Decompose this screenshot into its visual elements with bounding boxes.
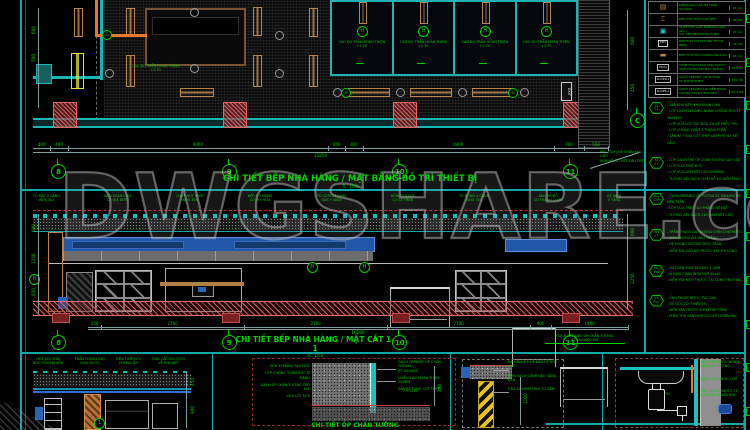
exhaust-hood xyxy=(63,237,375,252)
legend-description: ĐÈN THẢ TRẦN KHU BẾP xyxy=(678,18,729,21)
column xyxy=(223,102,247,128)
detail-b-concrete xyxy=(312,363,370,405)
note-tag: S1 T1 xyxy=(650,103,663,113)
dim-segment: 400 xyxy=(530,320,551,328)
detail-label: ỐNG CẤP NƯỚC NÓNG LẠNH ÂM TƯỜNG xyxy=(700,360,742,369)
trap-bottle xyxy=(648,389,665,410)
detail-a-cabinet-box xyxy=(152,403,178,429)
note-group: V1 PVC - ỐNG THOÁT NƯỚC PVC D90 - ĐỘ DỐC… xyxy=(649,295,744,320)
section-dim-right: 600 xyxy=(630,228,635,236)
legend-symbol-icon: ▤ xyxy=(660,4,667,11)
downlight xyxy=(190,64,199,73)
sink-bowl xyxy=(638,371,684,384)
detail-a-labels: HỘP GIÓ THẢI BỌC TÔN MẠ KẼMTRẦN THẠCH CA… xyxy=(33,357,185,365)
legend-quantity: 04 CÁI xyxy=(729,6,745,10)
plan-title: CHI TIẾT BẾP NHÀ HÀNG / MẶT BẰNG BỐ TRÍ … xyxy=(120,174,580,184)
counter-line xyxy=(48,263,608,264)
legend-icon-cell: SL/CER-2 xyxy=(649,86,678,97)
equipment-label: BẾP Á 2 HỌNG CÓ VÒI RỬA xyxy=(248,194,273,202)
legend-row: ▬ ĐÈN TUÝP ĐÔI CHỐNG ẨM 1.2M 08 CÁI xyxy=(649,50,745,62)
equipment-label-row: TỦ MÁT 2 CÁNH INOX 304BÀN SOẠN CHIA CÓ G… xyxy=(33,194,621,202)
detail-a-dim-line xyxy=(186,372,187,428)
dim-segment: 700 xyxy=(554,141,584,149)
detail-a-dim: 900 xyxy=(190,406,195,414)
note-lines: - TRẦN THẠCH CAO KHUNG CHÌM CHỊU NƯỚC - … xyxy=(667,229,744,254)
legend-icon-cell: ▣ xyxy=(649,26,678,37)
note-tag: V1 PVC xyxy=(650,296,663,306)
section-ceiling-dashed xyxy=(33,210,623,212)
column xyxy=(393,102,417,128)
stall-leader xyxy=(540,63,548,64)
section-dim-right: 2250 xyxy=(630,273,635,284)
frame-divider-plan-section xyxy=(20,189,746,191)
grid-bubble-side: C xyxy=(630,113,645,128)
detail-a-counter-box xyxy=(105,400,149,429)
stall-tag: H xyxy=(541,26,552,37)
plan-wall-left xyxy=(100,0,103,80)
detail-a-ceiling-hatch xyxy=(33,374,191,387)
equipment-label: CHỤP HÚT KHÓI INOX 304 xyxy=(176,194,203,202)
light-fixture-horizontal xyxy=(410,88,452,97)
stall-door xyxy=(482,2,490,24)
grid-bubble: 8 xyxy=(51,335,66,350)
stall-door xyxy=(543,2,551,24)
work-table xyxy=(560,367,608,407)
note-group: M1 INX - MẶT BÀN INOX 304 DÀY 1.2MM - KH… xyxy=(649,265,744,284)
legend-icon-cell: EXIT xyxy=(649,38,678,49)
detail-c-stone-cap xyxy=(470,365,512,379)
legend-row: CL/CER-1 GẠCH CERAMIC ỐP TƯỜNG KT 300x60… xyxy=(649,74,745,86)
light-fixture-yellow xyxy=(71,53,84,89)
fixture-marker: H xyxy=(508,88,518,98)
legend-description: ĐÈN TUÝP ĐÔI CHỐNG ẨM 1.2M xyxy=(678,54,729,57)
note-group: S2 T2 - LỚP GẠCH THẺ ỐP CHÂN TƯỜNG CAO 1… xyxy=(649,157,744,182)
note-tag-hexagon: W1 CER xyxy=(649,193,664,205)
floor-column-drop xyxy=(52,313,70,323)
note-group: S1 T1 - SÀN KHU BẾP, KHU SOẠN CHIA - LỚP… xyxy=(649,102,744,146)
duct-pipe-vertical xyxy=(95,0,98,36)
legend-row: ▣ QUẠT HÚT GẮN TRẦN NỐI ỐNG GIÓ CHI TIẾT… xyxy=(649,26,745,38)
legend-symbol-icon: ▬ xyxy=(660,52,667,59)
frame-left-outer xyxy=(20,0,22,430)
dim-segment: 400 xyxy=(345,141,362,149)
detail-separator-1 xyxy=(212,354,213,430)
exit-sign: EXIT xyxy=(561,82,572,101)
edge-cutoff-markers xyxy=(746,14,750,416)
detail-label: GẠCH CERAMIC ỐP CHÂN TƯỜNG KT 100x600 xyxy=(398,360,452,373)
frame-left-inner xyxy=(25,0,26,430)
plan-dim-left-line xyxy=(38,8,39,108)
detail-a-blue-box xyxy=(35,407,43,420)
grid-bubble: 8 xyxy=(51,164,66,179)
legend-quantity: 06 CÁI xyxy=(729,18,745,22)
legend-quantity: 05 CÁI xyxy=(729,30,745,34)
section-title: CHI TIẾT BẾP NHÀ HÀNG / MẶT CẮT 1-1 xyxy=(235,335,395,353)
stall-tag: H xyxy=(480,26,491,37)
stall-label: CAO ĐỘ TRẦN HOÀN THIỆN +2.70 xyxy=(334,40,390,49)
note-tag-hexagon: KH T3 xyxy=(649,229,664,241)
plan-wall-bottom xyxy=(33,118,607,128)
stall-block: H CAO ĐỘ TRẦN HOÀN THIỆN +2.70 H CAO ĐỘ … xyxy=(330,0,578,76)
legend-symbol-icon: ▣ xyxy=(660,28,667,35)
detail-a-dim: 450 xyxy=(190,378,195,386)
section-title-block: CHI TIẾT BẾP NHÀ HÀNG / MẶT CẮT 1-1 TL: … xyxy=(235,335,395,358)
plan-dim-right: 450 xyxy=(630,84,635,92)
detail-label: GẠCH ỐP CHÂN TƯỜNG CAO 100 xyxy=(254,383,310,392)
detail-label: VỮA XI MĂNG TẠO DỐC xyxy=(254,364,310,368)
light-fixture xyxy=(253,55,262,87)
section-marker: H xyxy=(307,262,318,273)
equipment-label: BỒN RỬA ĐÔI CÓ KỆ TRÊN xyxy=(391,194,415,202)
dim-segment: 2700 xyxy=(387,320,530,328)
legend-description: TRẦN THẠCH CAO CHỊU NƯỚC SƠN CHỐNG ẨM MÀ… xyxy=(678,64,729,71)
legend-description: MIỆNG GIÓ CẤP ÂM TRẦN 600x600 xyxy=(678,4,729,11)
equipment-label: TỦ MÁT 2 CÁNH INOX 304 xyxy=(33,194,60,202)
section-dim-right-line xyxy=(627,214,628,310)
legend-quantity: 08 CÁI xyxy=(729,54,745,58)
legend-symbol-icon: EXIT xyxy=(658,40,668,47)
dim-segment: 1450 xyxy=(551,320,628,328)
section-dim-row: 2502700270027004001450 xyxy=(88,320,628,328)
note-tag: W1 CER xyxy=(650,194,663,204)
plan-dim-row: 40040060004004004400700550 xyxy=(33,141,608,149)
stall-leader xyxy=(417,63,425,64)
wall-tile-line xyxy=(694,359,698,426)
notes-list: S1 T1 - SÀN KHU BẾP, KHU SOẠN CHIA - LỚP… xyxy=(649,102,744,331)
stall-cell: H CAO ĐỘ TRẦN HOÀN THIỆN +2.70 xyxy=(394,2,456,74)
stall-label: CAO ĐỘ TRẦN HOÀN THIỆN +2.70 xyxy=(519,40,575,49)
downlight xyxy=(105,69,114,78)
section-dim-left: 1350 xyxy=(31,253,36,264)
detail-label: CHẬU RỬA INOX 1 HỐ xyxy=(700,377,742,381)
detail-b-title: CHI TIẾT ỐP CHÂN TƯỜNG xyxy=(280,422,430,429)
ceiling-slab-hatch xyxy=(33,218,623,230)
detail-label: SƠN VẠCH CẢNH BÁO VÀNG - ĐEN xyxy=(508,374,560,383)
stall-cell: H CAO ĐỘ TRẦN HOÀN THIỆN +2.70 xyxy=(332,2,394,74)
legend-table: ▤ MIỆNG GIÓ CẤP ÂM TRẦN 600x600 04 CÁI ⌶… xyxy=(648,1,746,98)
duct-marker: G xyxy=(102,30,112,40)
legend-symbol-icon: ⌶ xyxy=(661,16,665,23)
light-fixture xyxy=(126,8,135,37)
detail-a-marker: 1 xyxy=(94,418,105,429)
supply-pipe-orange xyxy=(691,365,693,393)
note-tag-hexagon: M1 INX xyxy=(649,265,664,277)
section-dim-left-line xyxy=(38,214,39,314)
note-lines: - ỐNG THOÁT NƯỚC PVC D90 - ĐỘ DỐC TỐI TH… xyxy=(667,295,744,320)
stall-label: CAO ĐỘ TRẦN HOÀN THIỆN +2.70 xyxy=(396,40,452,49)
legend-symbol-icon: TR-01 xyxy=(657,64,669,71)
light-fixture xyxy=(309,55,318,87)
legend-icon-cell: TR-01 xyxy=(649,62,678,73)
detail-b-level-mark: ▽ +0.100 xyxy=(402,389,418,393)
plan-dim-left: 500 xyxy=(31,54,36,62)
note-group: KH T3 - TRẦN THẠCH CAO KHUNG CHÌM CHỊU N… xyxy=(649,229,744,254)
detail-label: LỚP CHỐNG THẤM GỐC XI MĂNG xyxy=(254,371,310,380)
equipment-label: BÀN SOẠN CHIA CÓ GIÁ DƯỚI xyxy=(104,194,131,202)
detail-label: VỮA LÓT M75 xyxy=(254,394,310,398)
section-dim-left: 850 xyxy=(31,288,36,296)
downlight xyxy=(458,88,467,97)
legend-description: GẠCH CERAMIC LÁT NỀN NHÁM CHỐNG TRƯỢT 30… xyxy=(678,88,729,95)
note-tag-hexagon: V1 PVC xyxy=(649,295,664,307)
equipment-label: BÀN RA ĐỒ CÓ THÀNH CHẮN xyxy=(534,194,563,202)
hood-lower-band xyxy=(63,251,373,261)
louver-strip xyxy=(578,0,610,148)
cad-drawing-sheet: G CAO ĐỘ TRẦN HOÀN THIỆN +2.70 H CAO ĐỘ … xyxy=(0,0,750,430)
equipment-label: TỦ CƠM 24 KHAY GAS + ĐIỆN xyxy=(317,194,346,202)
detail-c-leader xyxy=(493,392,509,393)
detail-b-leader xyxy=(377,381,396,382)
note-lines: - GẠCH CERAMIC ỐP TƯỜNG KT 300x600 ỐP ĐẾ… xyxy=(667,193,744,218)
detail-label: CAO 1100MM TÍNH TỪ SÀN xyxy=(508,387,560,391)
detail-label: CHIỀU CAO HOÀN THIỆN 100MM xyxy=(398,376,452,385)
dim-segment: 6000 xyxy=(68,141,328,149)
stall-leader xyxy=(356,63,364,64)
legend-icon-cell: CL/CER-1 xyxy=(649,74,678,85)
equipment-label: KỆ INOX 4 TẦNG xyxy=(607,194,621,202)
detail-d-labels: ỐNG CẤP NƯỚC NÓNG LẠNH ÂM TƯỜNGCHẬU RỬA … xyxy=(700,360,742,405)
downlight xyxy=(275,69,284,78)
legend-icon-cell: ⌶ xyxy=(649,14,678,25)
stall-cell: H CAO ĐỘ TRẦN HOÀN THIỆN +2.70 xyxy=(517,2,577,74)
legend-row: TR-01 TRẦN THẠCH CAO CHỊU NƯỚC SƠN CHỐNG… xyxy=(649,62,745,74)
detail-a-teal-line xyxy=(33,388,191,390)
detail-d-counter xyxy=(620,367,696,370)
detail-c-labels: ĐÁ GRANITE ỐP BẢO VỆ GÓC CỘTSƠN VẠCH CẢN… xyxy=(508,360,560,396)
detail-b-left-labels: VỮA XI MĂNG TẠO DỐCLỚP CHỐNG THẤM GỐC XI… xyxy=(254,364,310,402)
section-scale: TL: 1/50 xyxy=(235,353,395,358)
column xyxy=(53,102,77,128)
detail-c-leader xyxy=(493,370,509,371)
legend-symbol-icon: CL/CER-1 xyxy=(655,76,672,83)
floor-slab xyxy=(33,301,633,316)
legend-quantity: 02 CÁI xyxy=(729,42,745,46)
legend-icon-cell: ▬ xyxy=(649,50,678,61)
note-group: W1 CER - GẠCH CERAMIC ỐP TƯỜNG KT 300x60… xyxy=(649,193,744,218)
plan-dim-total: 13250 xyxy=(33,152,608,158)
legend-row: ▤ MIỆNG GIÓ CẤP ÂM TRẦN 600x600 04 CÁI xyxy=(649,2,745,14)
ceiling-line xyxy=(33,231,623,232)
plan-dim-right: 600 xyxy=(630,37,635,45)
detail-label: ỐNG THOÁT NƯỚC CÓ XI PHÔNG NGĂN MÙI xyxy=(700,389,742,398)
note-lines: - LỚP GẠCH THẺ ỐP CHÂN TƯỜNG CAO 100 - L… xyxy=(667,157,744,182)
detail-label: TRẦN THẠCH CAO CHỊU NƯỚC xyxy=(75,357,106,365)
plan-title-block: CHI TIẾT BẾP NHÀ HÀNG / MẶT BẰNG BỐ TRÍ … xyxy=(120,174,580,189)
dim-segment: 2700 xyxy=(101,320,244,328)
dim-segment: 400 xyxy=(50,141,67,149)
detail-a-ceiling-ticks xyxy=(33,371,191,373)
note-lines: - SÀN KHU BẾP, KHU SOẠN CHIA - LỚP GẠCH … xyxy=(667,102,744,146)
stall-door xyxy=(359,2,367,24)
legend-quantity: 78.0 M2 xyxy=(729,78,745,82)
detail-label: ỐNG CẤP GIÓ TƯƠI VỀ KHU BẾP xyxy=(152,357,185,365)
legend-row: EXIT ĐÈN EXIT CHỈ HƯỚNG THOÁT HIỂM 02 CÁ… xyxy=(649,38,745,50)
detail-d-dim: 750 xyxy=(664,392,670,396)
note-tag: KH T3 xyxy=(650,230,663,240)
detail-b-leader xyxy=(377,369,396,370)
dim-segment: 400 xyxy=(33,141,50,149)
legend-description: GẠCH CERAMIC ỐP TƯỜNG KT 300x600 MM xyxy=(678,76,729,83)
detail-b-red-line xyxy=(312,405,430,406)
downlight xyxy=(190,8,199,17)
legend-row: SL/CER-2 GẠCH CERAMIC LÁT NỀN NHÁM CHỐNG… xyxy=(649,86,745,97)
exhaust-hood-small xyxy=(505,239,567,252)
note-tag-hexagon: S1 T1 xyxy=(649,102,664,114)
dim-segment: 400 xyxy=(328,141,345,149)
plan-dim-right-line xyxy=(627,10,628,110)
detail-a-blue-line xyxy=(33,391,191,393)
detail-c-warning-stripe xyxy=(478,381,494,428)
dim-segment: 4400 xyxy=(363,141,554,149)
legend-quantity: 61.4 M2 xyxy=(729,90,745,94)
water-valve xyxy=(718,404,732,414)
detail-label: ĐÈN TUÝP ĐÔI CHỐNG ẨM xyxy=(116,357,140,365)
stall-tag: H xyxy=(418,26,429,37)
drain-elbow xyxy=(677,406,687,416)
detail-b-dim-line xyxy=(434,366,435,406)
section-marker: H xyxy=(359,262,370,273)
note-tag: S2 T2 xyxy=(650,158,663,168)
note-tag: M1 INX xyxy=(650,266,663,276)
counter-top-tan xyxy=(160,282,244,286)
legend-quantity: 45.5 M2 xyxy=(729,66,745,70)
section-dim-left: 600 xyxy=(31,224,36,232)
stall-door xyxy=(420,2,428,24)
fixture-marker: H xyxy=(341,88,351,98)
note-lines: - MẶT BÀN INOX 304 DÀY 1.2MM - KHUNG CHÂ… xyxy=(667,265,744,284)
light-fixture xyxy=(74,8,83,37)
equipment-label: TỦ ĐÔNG 4 CÁNH INOX 304 xyxy=(459,194,489,202)
downlight xyxy=(275,31,284,40)
plan-scale: TL: 1/50 xyxy=(120,184,580,189)
detail-b-dim: 100 xyxy=(437,384,442,392)
section-right-note: GẠCH CERAMIC ỐP CHÂN TƯỜNG KT 100x600 MM xyxy=(545,334,625,344)
legend-icon-cell: ▤ xyxy=(649,2,678,13)
stall-cell: H CAO ĐỘ TRẦN HOÀN THIỆN +2.70 xyxy=(455,2,517,74)
frame-notes-column xyxy=(644,0,646,353)
light-fixture xyxy=(253,7,262,36)
legend-description: QUẠT HÚT GẮN TRẦN NỐI ỐNG GIÓ CHI TIẾT X… xyxy=(678,26,729,36)
detail-label: HỘP GIÓ THẢI BỌC TÔN MẠ KẼM xyxy=(33,357,63,365)
dim-segment: 2700 xyxy=(244,320,387,328)
note-tag-hexagon: S2 T2 xyxy=(649,157,664,169)
plan-dim-left: 600 xyxy=(31,26,36,34)
stall-leader xyxy=(479,63,487,64)
light-fixture xyxy=(309,8,318,37)
legend-symbol-icon: SL/CER-2 xyxy=(655,88,672,95)
dim-segment: 550 xyxy=(584,141,608,149)
stall-tag: H xyxy=(357,26,368,37)
detail-c-blue-box xyxy=(461,367,470,378)
detail-label: ĐÁ GRANITE ỐP BẢO VỆ GÓC CỘT xyxy=(508,360,560,369)
plan-ceiling-note: CAO ĐỘ TRẦN HOÀN THIỆN +2.70 xyxy=(128,64,183,73)
downlight xyxy=(396,88,405,97)
downlight xyxy=(520,88,529,97)
light-fixture-horizontal xyxy=(180,88,214,97)
light-fixture-horizontal xyxy=(348,88,390,97)
legend-description: ĐÈN EXIT CHỈ HƯỚNG THOÁT HIỂM xyxy=(678,40,729,47)
dim-segment: 250 xyxy=(88,320,101,328)
detail-b-screed xyxy=(312,407,430,421)
stall-label: CAO ĐỘ TRẦN HOÀN THIỆN +2.70 xyxy=(457,40,513,49)
